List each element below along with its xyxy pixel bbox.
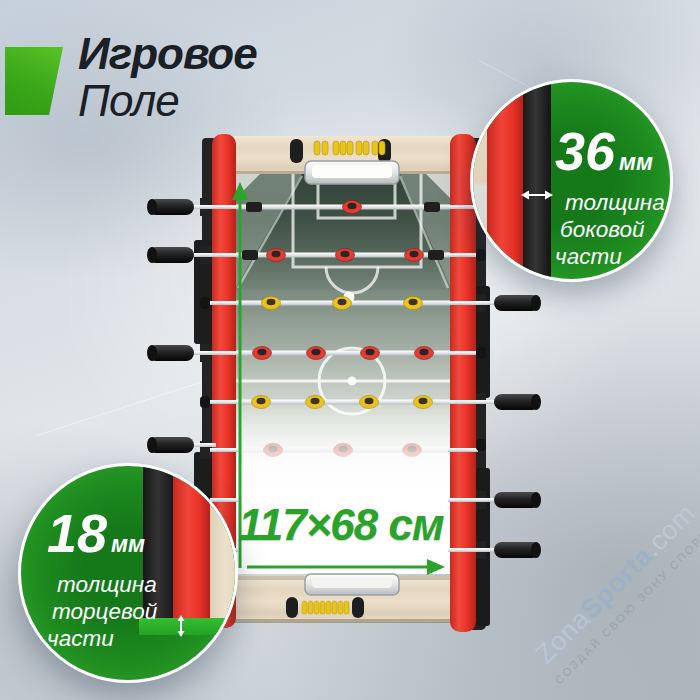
side-thickness-unit: мм (619, 149, 653, 175)
player-red (307, 347, 326, 360)
side-caption-line: боковой (560, 216, 670, 243)
center-spot (348, 377, 357, 386)
end-thickness-value: 18 (47, 503, 107, 563)
callout-side-thickness: 36мм толщина боковой части (470, 79, 673, 282)
player-red (343, 201, 362, 214)
goal-slot-bottom (305, 574, 399, 595)
callout-end-thickness: 18мм толщина торцевой части (18, 463, 238, 683)
player-red (405, 249, 424, 262)
thickness-arrow-icon (520, 187, 554, 203)
player-red (253, 347, 272, 360)
player-red (361, 347, 380, 360)
page-title-line1: Игровое (78, 30, 257, 77)
side-thickness-value: 36 (555, 121, 615, 181)
player-red (336, 249, 355, 262)
product-infographic: Игровое Поле 117×68 см 36мм толщина боко… (0, 0, 700, 700)
player-yellow (404, 297, 423, 310)
end-caption-line: части (47, 625, 177, 652)
end-thickness-unit: мм (111, 531, 145, 557)
player-yellow (360, 396, 379, 409)
player-yellow (252, 396, 271, 409)
page-title-line2: Поле (78, 77, 257, 124)
player-yellow (306, 396, 325, 409)
field-dimensions-label: 117×68 см (230, 500, 452, 550)
magnified-black-wall (523, 79, 551, 282)
goal-slot-top (305, 161, 399, 184)
rod-row-3 (234, 297, 452, 310)
player-red (415, 347, 434, 360)
end-caption-line: торцевой (52, 598, 177, 625)
end-caption-line: толщина (57, 571, 177, 598)
player-yellow (262, 297, 281, 310)
player-yellow (414, 396, 433, 409)
player-yellow (333, 297, 352, 310)
player-red (267, 249, 286, 262)
side-caption-line: толщина (565, 189, 670, 216)
